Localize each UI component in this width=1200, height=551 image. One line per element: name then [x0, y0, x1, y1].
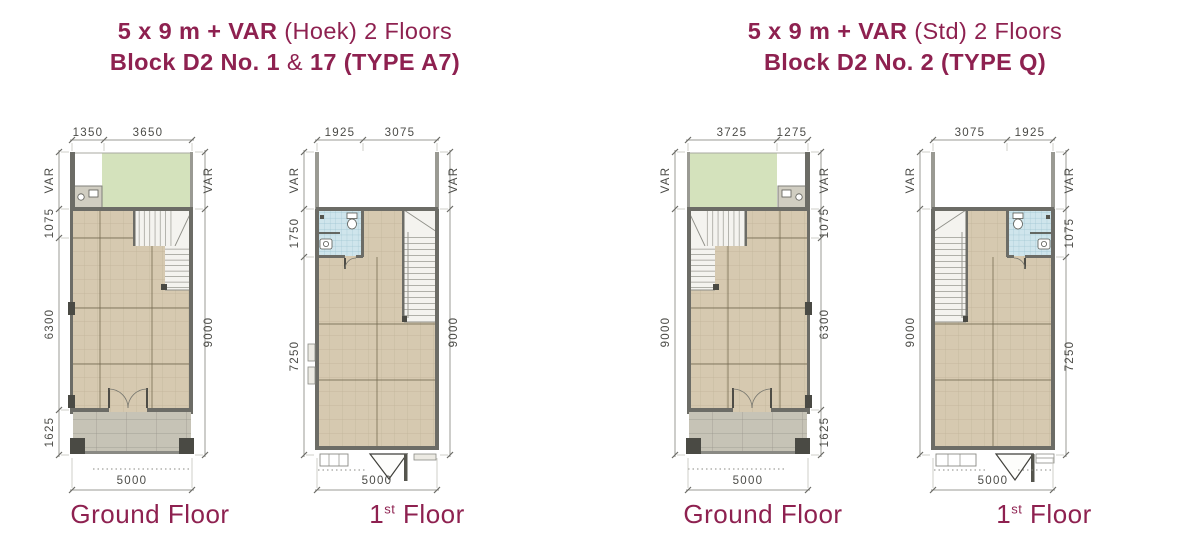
dim-label: 6300 [819, 309, 831, 340]
dim-label: 1075 [1064, 218, 1076, 249]
shower-drain [1046, 215, 1050, 219]
dim-label: 5000 [733, 475, 764, 487]
dim-label: 7250 [1064, 341, 1076, 372]
dim-label: 9000 [660, 317, 672, 348]
toilet [1014, 219, 1023, 229]
sink [1038, 239, 1050, 249]
title-type-q-line2: Block D2 No. 2 (TYPE Q) [665, 47, 1145, 78]
top-dimension: 3075 1925 [930, 127, 1056, 151]
dim-label: 6300 [44, 309, 56, 340]
floor-label-ground-hoek: Ground Floor [30, 499, 270, 530]
dim-label: 3075 [385, 127, 416, 139]
dim-label: VAR [448, 167, 460, 194]
right-dimension: VAR 1075 7250 [1056, 149, 1076, 458]
garden-area [72, 152, 193, 209]
garden-area [687, 152, 808, 209]
porch [70, 412, 194, 454]
dim-label: 1750 [289, 218, 301, 249]
ground-floor-plan-std: 3725 1275 VAR 9000 VAR 1075 6300 1625 50… [623, 112, 873, 497]
title-type-q-line1: 5 x 9 m + VAR (Std) 2 Floors [665, 16, 1145, 47]
top-dimension: 1350 3650 [69, 127, 195, 151]
title-type-a7-line2: Block D2 No. 1 & 17 (TYPE A7) [45, 47, 525, 78]
dim-label: 1925 [1015, 127, 1046, 139]
floor-label-first-std: 1st Floor [924, 499, 1164, 530]
dim-label: 1925 [325, 127, 356, 139]
dim-label: VAR [1064, 167, 1076, 194]
left-dimension: VAR 1075 6300 1625 [44, 149, 69, 458]
dim-label: 1075 [819, 208, 831, 239]
porch-column [179, 438, 194, 454]
planter [936, 454, 976, 466]
stairs [933, 209, 968, 322]
window-ledge [308, 367, 315, 384]
title-type-a7: 5 x 9 m + VAR (Hoek) 2 Floors Block D2 N… [45, 16, 525, 78]
left-dimension: VAR 9000 [905, 149, 930, 458]
stairs [402, 209, 437, 322]
dim-label: 5000 [117, 475, 148, 487]
dim-label: 1075 [44, 208, 56, 239]
dim-label: VAR [819, 167, 831, 194]
utility-fixture [78, 194, 84, 200]
title-variant: (Hoek) 2 Floors [277, 18, 452, 44]
floor-label-ground-std: Ground Floor [643, 499, 883, 530]
dim-label: VAR [44, 167, 56, 194]
bottom-dimension: 5000 [685, 458, 811, 493]
dim-label: 7250 [289, 341, 301, 372]
dim-label: VAR [289, 167, 301, 194]
dim-label: 9000 [905, 317, 917, 348]
planter [320, 454, 348, 466]
top-dimension: 1925 3075 [314, 127, 440, 151]
bottom-dimension: 5000 [69, 458, 195, 493]
first-floor-plan-std: 3075 1925 VAR 9000 VAR 1075 7250 5000 [868, 112, 1118, 497]
sink [320, 239, 332, 249]
right-dimension: VAR 9000 [195, 149, 215, 458]
dim-label: 3725 [717, 127, 748, 139]
dim-label: 1625 [819, 417, 831, 448]
dim-label: 9000 [448, 317, 460, 348]
toilet [348, 219, 357, 229]
boundary-walls [931, 152, 1055, 209]
dim-label: 3650 [133, 127, 164, 139]
right-dimension: VAR 9000 [440, 149, 460, 458]
title-size: 5 x 9 m + VAR [118, 18, 278, 44]
dim-label: 1625 [44, 417, 56, 448]
dim-label: VAR [203, 167, 215, 194]
dim-label: VAR [905, 167, 917, 194]
top-dimension: 3725 1275 [685, 127, 811, 151]
dim-label: 1350 [73, 127, 104, 139]
toilet-tank [1013, 213, 1023, 219]
dim-label: 3075 [955, 127, 986, 139]
dim-label: 5000 [978, 475, 1009, 487]
utility-fixture [796, 194, 802, 200]
left-dimension: VAR 1750 7250 [289, 149, 314, 458]
floor-label-first-hoek: 1st Floor [297, 499, 537, 530]
dim-label: 5000 [362, 475, 393, 487]
title-type-q: 5 x 9 m + VAR (Std) 2 Floors Block D2 No… [665, 16, 1145, 78]
porch-column [795, 438, 810, 454]
right-dimension: VAR 1075 6300 1625 [811, 149, 831, 458]
window-ledge [308, 344, 315, 361]
dim-label: 9000 [203, 317, 215, 348]
dim-label: 1275 [777, 127, 808, 139]
dim-label: VAR [660, 167, 672, 194]
left-dimension: VAR 9000 [660, 149, 685, 458]
porch [686, 412, 810, 454]
porch-column [70, 438, 85, 454]
shower-drain [320, 215, 324, 219]
first-floor-plan-hoek: 1925 3075 VAR 1750 7250 VAR 9000 5000 [252, 112, 502, 497]
floorplan-sheet: 5 x 9 m + VAR (Hoek) 2 Floors Block D2 N… [0, 0, 1200, 551]
porch-column [686, 438, 701, 454]
ground-floor-plan-hoek: 1350 3650 VAR 1075 6300 1625 VAR 9000 50… [7, 112, 257, 497]
toilet-tank [347, 213, 357, 219]
boundary-walls [315, 152, 439, 209]
title-type-a7-line1: 5 x 9 m + VAR (Hoek) 2 Floors [45, 16, 525, 47]
